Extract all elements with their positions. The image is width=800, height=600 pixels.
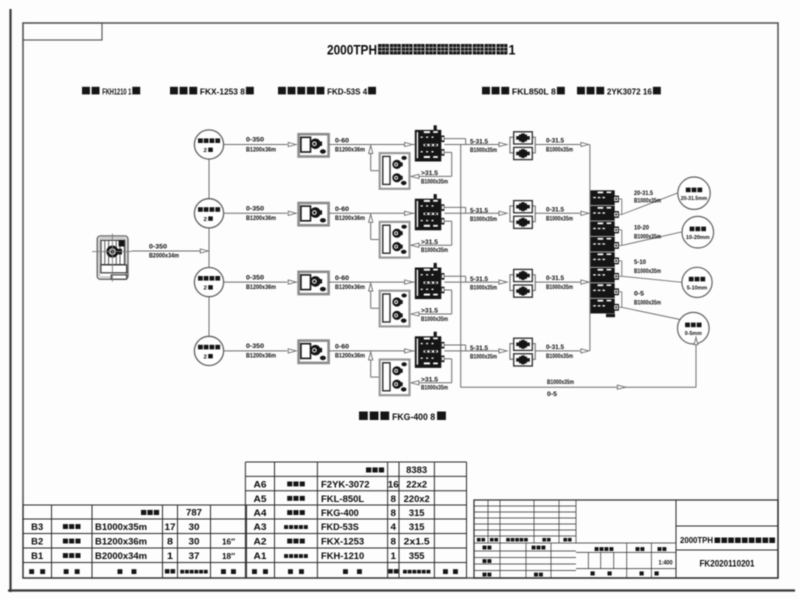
svg-text:B1200x36m: B1200x36m: [335, 215, 365, 222]
svg-text:B1000x35m: B1000x35m: [470, 354, 497, 361]
svg-text:FKH-1210: FKH-1210: [321, 551, 364, 561]
svg-text:FKL850L 8: FKL850L 8: [512, 87, 556, 97]
svg-text:B2000x34m: B2000x34m: [95, 551, 147, 561]
svg-text:20-31.5mm: 20-31.5mm: [681, 196, 707, 202]
svg-text:B1000x35m: B1000x35m: [547, 379, 574, 386]
svg-text:B2000x34m: B2000x34m: [149, 252, 179, 259]
svg-text:10-20mm: 10-20mm: [686, 235, 710, 241]
svg-text:B1000x35m: B1000x35m: [634, 268, 661, 275]
svg-text:0-350: 0-350: [246, 343, 264, 350]
svg-text:30: 30: [189, 537, 200, 547]
svg-text:8: 8: [391, 494, 397, 504]
svg-text:18″: 18″: [222, 551, 235, 561]
svg-text:B1: B1: [31, 551, 43, 561]
svg-text:B1200x36m: B1200x36m: [246, 215, 276, 222]
svg-text:FKD-53S 4: FKD-53S 4: [327, 87, 367, 97]
svg-text:2: 2: [204, 354, 207, 360]
svg-text:B1000x35m: B1000x35m: [634, 300, 661, 307]
svg-text:B2: B2: [31, 537, 43, 547]
svg-text:787: 787: [186, 508, 202, 518]
svg-text:FKX-1253: FKX-1253: [321, 537, 364, 547]
svg-text:B1000x35m: B1000x35m: [546, 215, 573, 222]
svg-text:5-31.5: 5-31.5: [470, 139, 488, 146]
svg-text:>31.5: >31.5: [421, 308, 438, 315]
svg-text:1: 1: [167, 551, 173, 561]
svg-text:1: 1: [391, 551, 397, 561]
svg-text:2000TPH: 2000TPH: [327, 42, 377, 58]
svg-text:0-5mm: 0-5mm: [685, 331, 702, 337]
svg-text:8383: 8383: [406, 465, 427, 475]
svg-text:5-31.5: 5-31.5: [470, 207, 488, 214]
svg-text:B1200x36m: B1200x36m: [246, 146, 276, 153]
svg-text:315: 315: [409, 522, 425, 532]
svg-text:0-350: 0-350: [246, 137, 264, 144]
svg-text:2: 2: [204, 148, 207, 154]
svg-text:A3: A3: [254, 522, 267, 532]
svg-text:5-31.5: 5-31.5: [470, 345, 488, 352]
svg-text:0-31.5: 0-31.5: [546, 344, 564, 351]
svg-text:>31.5: >31.5: [421, 170, 438, 177]
svg-text:0-31.5: 0-31.5: [546, 138, 564, 145]
svg-text:2YK3072 16: 2YK3072 16: [607, 87, 652, 97]
svg-text:B1200x36m: B1200x36m: [246, 353, 276, 360]
svg-text:B1000x35m: B1000x35m: [95, 522, 147, 532]
svg-text:0-31.5: 0-31.5: [546, 275, 564, 282]
svg-text:A6: A6: [254, 479, 267, 489]
svg-text:8: 8: [391, 508, 397, 518]
svg-text:B1000x35m: B1000x35m: [546, 147, 573, 154]
svg-text:0-60: 0-60: [335, 137, 349, 144]
svg-text:B1000x35m: B1000x35m: [421, 247, 448, 254]
svg-text:8: 8: [391, 537, 397, 547]
svg-text:>31.5: >31.5: [421, 376, 438, 383]
svg-text:FKH1210 1: FKH1210 1: [102, 87, 131, 97]
svg-text:A4: A4: [254, 508, 267, 518]
svg-text:B1000x35m: B1000x35m: [546, 284, 573, 291]
svg-text:B1000x35m: B1000x35m: [421, 178, 448, 185]
svg-text:17: 17: [165, 522, 176, 532]
svg-text:B1200x36m: B1200x36m: [246, 284, 276, 291]
svg-text:F2YK-3072: F2YK-3072: [321, 479, 370, 489]
svg-text:2: 2: [204, 286, 207, 292]
svg-text:>31.5: >31.5: [421, 239, 438, 246]
svg-text:0-31.5: 0-31.5: [546, 206, 564, 213]
svg-text:22x2: 22x2: [406, 479, 427, 489]
svg-text:FKX-1253 8: FKX-1253 8: [200, 87, 245, 97]
svg-text:A2: A2: [254, 537, 267, 547]
svg-text:1:400: 1:400: [659, 560, 673, 567]
svg-text:B1200x36m: B1200x36m: [335, 284, 365, 291]
svg-text:B1000x35m: B1000x35m: [470, 285, 497, 292]
svg-text:B1200x36m: B1200x36m: [335, 146, 365, 153]
svg-text:B1000x35m: B1000x35m: [470, 216, 497, 223]
svg-text:10-20: 10-20: [634, 225, 649, 232]
svg-text:220x2: 220x2: [404, 494, 430, 504]
svg-text:5-10: 5-10: [634, 259, 646, 266]
svg-text:37: 37: [189, 551, 200, 561]
svg-text:16: 16: [388, 479, 399, 489]
svg-text:355: 355: [409, 551, 425, 561]
svg-text:B1000x35m: B1000x35m: [470, 147, 497, 154]
svg-text:FKG-400 8: FKG-400 8: [392, 412, 435, 423]
svg-text:0-350: 0-350: [149, 243, 167, 250]
svg-text:FKD-53S: FKD-53S: [321, 522, 359, 532]
svg-text:FK2020110201: FK2020110201: [700, 559, 756, 570]
svg-text:4: 4: [391, 522, 397, 532]
svg-text:0-60: 0-60: [335, 275, 349, 282]
svg-text:5-10mm: 5-10mm: [687, 285, 707, 291]
svg-text:B1000x35m: B1000x35m: [421, 316, 448, 323]
svg-text:FKG-400: FKG-400: [321, 508, 359, 518]
svg-text:2: 2: [204, 217, 207, 223]
svg-text:B1000x35m: B1000x35m: [634, 234, 661, 241]
svg-text:B1200x36m: B1200x36m: [335, 353, 365, 360]
svg-text:0-350: 0-350: [246, 206, 264, 213]
svg-text:2000TPH: 2000TPH: [680, 536, 713, 545]
svg-text:2x1.5: 2x1.5: [404, 537, 430, 547]
svg-text:315: 315: [409, 508, 425, 518]
svg-text:B3: B3: [31, 522, 43, 532]
svg-text:FKL-850L: FKL-850L: [321, 494, 365, 504]
svg-text:20-31.5: 20-31.5: [634, 190, 653, 197]
svg-text:0-350: 0-350: [246, 274, 264, 281]
svg-text:8: 8: [167, 537, 173, 547]
svg-text:B1200x36m: B1200x36m: [95, 537, 147, 547]
svg-text:B1000x35m: B1000x35m: [634, 198, 661, 205]
svg-text:B1000x35m: B1000x35m: [421, 385, 448, 392]
svg-text:0-5: 0-5: [547, 391, 557, 398]
svg-text:0-60: 0-60: [335, 344, 349, 351]
svg-text:1: 1: [509, 42, 516, 58]
svg-text:A5: A5: [254, 494, 267, 504]
svg-text:0-5: 0-5: [634, 291, 644, 298]
svg-text:16″: 16″: [222, 537, 235, 547]
svg-text:5-31.5: 5-31.5: [470, 276, 488, 283]
svg-text:A1: A1: [254, 551, 267, 561]
svg-text:30: 30: [189, 522, 200, 532]
svg-text:0-60: 0-60: [335, 206, 349, 213]
svg-text:B1000x35m: B1000x35m: [546, 353, 573, 360]
